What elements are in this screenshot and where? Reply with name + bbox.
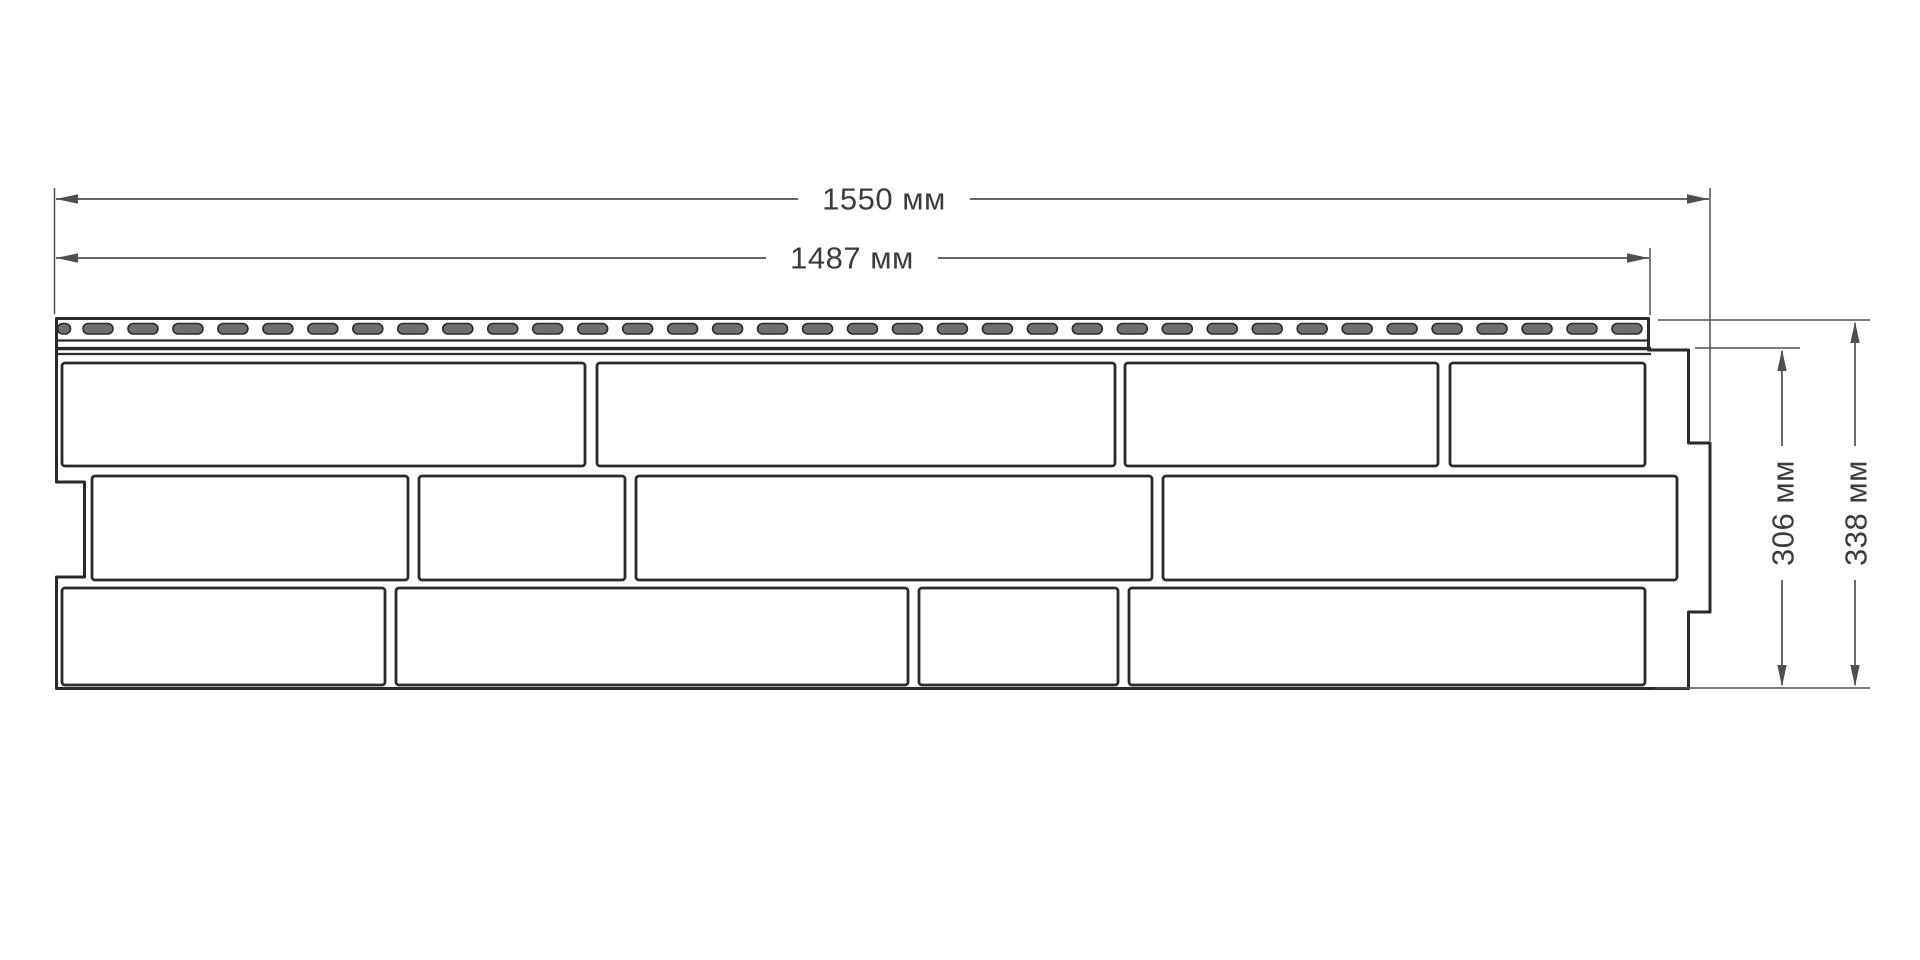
brick (636, 476, 1152, 580)
dim-label-width-useful: 1487 мм (790, 241, 914, 276)
nail-slot (128, 324, 158, 335)
nail-slot (353, 324, 383, 335)
arrow-left-icon (56, 194, 78, 203)
brick (597, 363, 1115, 466)
nail-slot (58, 324, 71, 335)
brick (1163, 476, 1677, 580)
nail-slot (1252, 324, 1282, 335)
nail-slot (937, 324, 967, 335)
nail-slot (218, 324, 248, 335)
brick (1450, 363, 1645, 466)
arrow-right-icon (1687, 194, 1709, 203)
dim-label-width-total: 1550 мм (822, 182, 946, 217)
arrow-up-icon (1850, 322, 1859, 344)
brick (62, 363, 585, 466)
nail-slot (263, 324, 293, 335)
nail-slot (398, 324, 428, 335)
nail-slot (533, 324, 563, 335)
brick (419, 476, 625, 580)
nail-slot (1162, 324, 1192, 335)
nail-slot (1072, 324, 1102, 335)
brick (1129, 588, 1645, 685)
panel-drawing (57, 319, 1711, 689)
nail-slot (1432, 324, 1462, 335)
brick (62, 588, 385, 685)
brick (92, 476, 408, 580)
brick (1125, 363, 1438, 466)
dim-label-height-useful: 306 мм (1766, 460, 1801, 566)
brick (396, 588, 908, 685)
dim-label-height-total: 338 мм (1839, 460, 1874, 566)
nail-slot (308, 324, 338, 335)
nail-slot (1207, 324, 1237, 335)
nail-slot (758, 324, 788, 335)
nail-slot (847, 324, 877, 335)
nail-slot (83, 324, 113, 335)
nail-slot (1522, 324, 1552, 335)
nail-slot (1027, 324, 1057, 335)
dim-width-useful: 1487 мм (56, 241, 1650, 316)
arrow-left-icon (56, 253, 78, 262)
nail-slot (578, 324, 608, 335)
nail-slot (982, 324, 1012, 335)
nail-slot (1477, 324, 1507, 335)
nail-slot (1612, 324, 1642, 335)
arrow-right-icon (1627, 253, 1649, 262)
nail-slot (1567, 324, 1597, 335)
facade-panel-technical-drawing: 1550 мм 1487 мм 306 мм (0, 0, 1920, 960)
nail-slot (803, 324, 833, 335)
nail-slot (173, 324, 203, 335)
nail-slot (1117, 324, 1147, 335)
nail-slot (488, 324, 518, 335)
nail-slot-row (58, 324, 1642, 335)
nail-slot (1342, 324, 1372, 335)
brick (919, 588, 1118, 685)
nail-slot (713, 324, 743, 335)
arrow-down-icon (1777, 665, 1786, 687)
arrow-down-icon (1850, 665, 1859, 687)
brick-pattern (62, 363, 1677, 685)
drawing-canvas: 1550 мм 1487 мм 306 мм (0, 0, 1920, 960)
nail-slot (443, 324, 473, 335)
nail-slot (623, 324, 653, 335)
nail-slot (892, 324, 922, 335)
nail-slot (1387, 324, 1417, 335)
nail-slot (1297, 324, 1327, 335)
nail-slot (668, 324, 698, 335)
arrow-up-icon (1777, 350, 1786, 372)
